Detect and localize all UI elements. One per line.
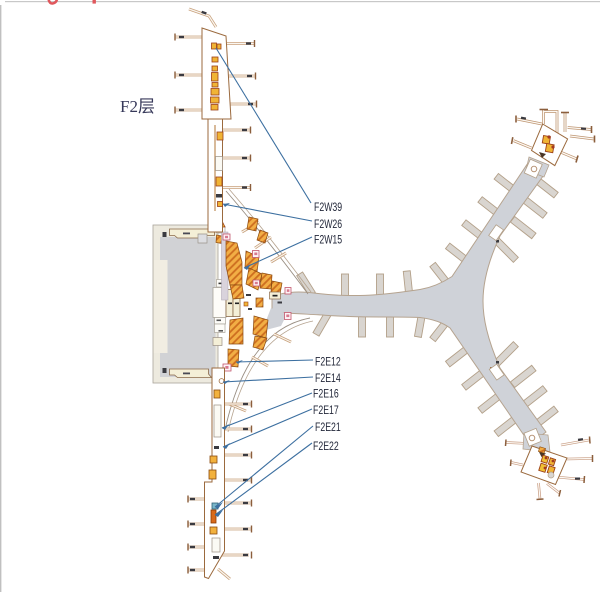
svg-text:F2W15: F2W15 bbox=[314, 234, 342, 246]
svg-text:F2E21: F2E21 bbox=[315, 422, 341, 434]
svg-text:F2E17: F2E17 bbox=[313, 405, 339, 417]
svg-text:F2E22: F2E22 bbox=[313, 441, 339, 453]
svg-text:F2E14: F2E14 bbox=[315, 373, 341, 385]
svg-text:F2W39: F2W39 bbox=[314, 202, 342, 214]
svg-text:F2E16: F2E16 bbox=[313, 388, 339, 400]
svg-text:F2层: F2层 bbox=[120, 97, 155, 116]
svg-text:F2W26: F2W26 bbox=[314, 219, 342, 231]
svg-text:F2E12: F2E12 bbox=[315, 356, 341, 368]
